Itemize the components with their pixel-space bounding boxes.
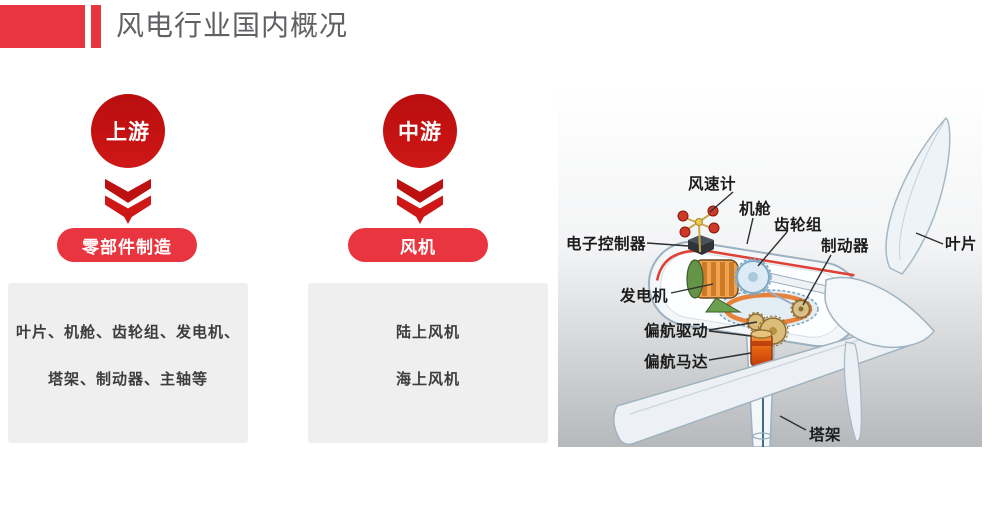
detail-line: 海上风机 xyxy=(396,356,460,403)
wind-turbine-diagram: 风速计 机舱 齿轮组 电子控制器 制动器 叶片 发电机 偏航驱动 偏航马达 塔架 xyxy=(558,85,982,447)
detail-line: 叶片、机舱、齿轮组、发电机、 xyxy=(16,309,240,356)
title-accent-bar xyxy=(91,5,101,48)
page-title: 风电行业国内概况 xyxy=(116,7,348,45)
tower-label: 塔架 xyxy=(809,425,841,444)
anemometer-label: 风速计 xyxy=(688,174,736,193)
category-pill-label: 风机 xyxy=(400,233,436,258)
details-card-components: 叶片、机舱、齿轮组、发电机、 塔架、制动器、主轴等 xyxy=(8,283,248,443)
nacelle-label: 机舱 xyxy=(739,199,771,218)
generator-label: 发电机 xyxy=(619,286,668,305)
category-pill-components: 零部件制造 xyxy=(57,228,197,262)
chevron-down-icon xyxy=(392,178,448,224)
stage-badge-midstream: 中游 xyxy=(383,94,457,168)
category-pill-label: 零部件制造 xyxy=(82,233,172,258)
brake-label: 制动器 xyxy=(821,237,869,255)
wind-turbine-illustration: 风速计 机舱 齿轮组 电子控制器 制动器 叶片 发电机 偏航驱动 偏航马达 塔架 xyxy=(558,85,982,447)
slide: 风电行业国内概况 上游 零部件制造 叶片、机舱、齿轮组、发电机、 塔架、制动器、… xyxy=(0,0,1000,518)
yaw-motor-shape xyxy=(751,330,772,366)
stage-badge-label: 中游 xyxy=(398,116,442,146)
stage-badge-label: 上游 xyxy=(106,116,150,146)
category-pill-turbine: 风机 xyxy=(348,228,488,262)
chevron-down-icon xyxy=(100,178,156,224)
yaw-drive-label: 偏航驱动 xyxy=(644,321,708,340)
controller-label: 电子控制器 xyxy=(566,234,646,253)
gearbox-label: 齿轮组 xyxy=(774,215,822,234)
detail-line: 塔架、制动器、主轴等 xyxy=(48,356,208,403)
title-accent-block xyxy=(0,5,85,48)
blade-label: 叶片 xyxy=(945,234,977,253)
yaw-motor-label: 偏航马达 xyxy=(644,352,708,371)
details-card-turbine: 陆上风机 海上风机 xyxy=(308,283,548,443)
detail-line: 陆上风机 xyxy=(396,309,460,356)
stage-badge-upstream: 上游 xyxy=(91,94,165,168)
